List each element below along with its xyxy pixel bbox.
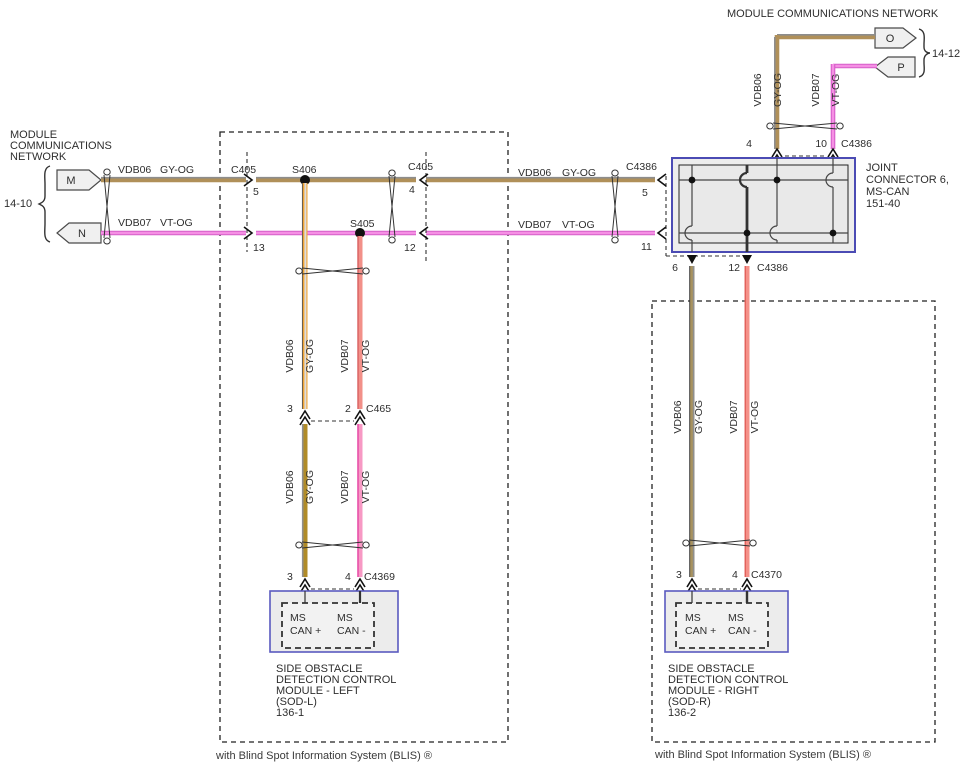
connector-name: C4386 [757,262,788,274]
pin-number: 12 [404,242,416,254]
connector-name: C4386 [626,161,657,173]
wire-id-label: VDB06 [752,73,764,106]
wire-id-label: VDB06 [518,167,551,179]
module-pin-label: MS [337,612,353,624]
module-label-line: 136-2 [668,707,696,719]
wire-can-low-drop-upper [358,236,360,409]
arrow-down-icon [742,255,752,264]
connector-o-label: O [886,33,895,45]
connector-c405-left: C405 5 13 [231,152,265,254]
joint-connector-box [672,158,855,252]
wire-can-high-drop-upper [302,183,305,409]
arrow-up-icon [355,417,365,425]
pin-number: 4 [732,569,738,581]
wire-id-label: VDB07 [339,339,351,372]
pin-number: 3 [676,569,682,581]
wire-color-label: VT-OG [562,219,595,231]
wire-color-label: GY-OG [304,339,316,373]
wire-id-label: VDB07 [118,217,151,229]
connector-name: C405 [408,161,433,173]
pin-number: 12 [728,262,740,274]
footnote-left: with Blind Spot Information System (BLIS… [215,750,432,762]
module-pin-label: CAN - [728,625,757,637]
module-sod-right-label: SIDE OBSTACLE DETECTION CONTROL MODULE -… [668,663,788,719]
wire-id-label: VDB07 [339,470,351,503]
connector-c405-right: C405 4 12 [404,152,433,262]
module-sod-left-label: SIDE OBSTACLE DETECTION CONTROL MODULE -… [276,663,396,719]
wire-color-label: VT-OG [830,74,842,107]
wire-color-label: VT-OG [749,401,761,434]
arrow-left-icon [658,174,666,186]
connector-name: C465 [366,403,391,415]
wire-id-label: VDB06 [284,339,296,372]
arrow-left-icon [658,227,666,239]
network-top-right-ref: 14-12 [932,48,960,60]
joint-connector-label: JOINT CONNECTOR 6, MS-CAN 151-40 [866,162,949,210]
junction-dot [774,177,781,184]
network-top-right-title: MODULE COMMUNICATIONS NETWORK [727,8,939,20]
wire-color-label: VT-OG [360,340,372,373]
joint-connector-label-line: 151-40 [866,198,900,210]
connector-n-label: N [78,228,86,240]
pin-number: 4 [345,571,351,583]
network-left-ref: 14-10 [4,198,32,210]
wire-id-label: VDB07 [810,73,822,106]
arrow-up-icon [300,417,310,425]
network-left-title-line: NETWORK [10,151,67,163]
wire-can-high-top-right [775,35,875,149]
joint-connector-label-line: JOINT [866,162,898,174]
joint-connector-label-line: MS-CAN [866,186,909,198]
wire-color-label: VT-OG [160,217,193,229]
pin-number: 3 [287,571,293,583]
connector-m-label: M [66,175,75,187]
splice-label: S406 [292,164,317,176]
junction-dot [689,177,696,184]
module-pin-label: CAN + [685,625,716,637]
pin-number: 5 [253,186,259,198]
pin-number: 4 [409,184,415,196]
wire-id-label: VDB06 [672,400,684,433]
pin-number: 5 [642,187,648,199]
wire-id-label: VDB06 [284,470,296,503]
pin-number: 2 [345,403,351,415]
footnote-right: with Blind Spot Information System (BLIS… [654,749,871,761]
module-pin-label: CAN + [290,625,321,637]
junction-dot [830,230,837,237]
wire-id-label: VDB07 [728,400,740,433]
wire-id-label: VDB06 [118,164,151,176]
connector-name: C4386 [841,138,872,150]
wire-color-label: GY-OG [693,400,705,434]
wire-color-label: GY-OG [160,164,194,176]
connector-name: C4370 [751,569,782,581]
module-pin-label: MS [685,612,701,624]
pin-number: 13 [253,242,265,254]
splice-label: S405 [350,218,375,230]
connector-name: C405 [231,164,256,176]
pin-number: 11 [641,241,652,253]
module-sod-left-box: MS CAN + MS CAN - [270,591,398,652]
wire-id-label: VDB07 [518,219,551,231]
wire-color-label: GY-OG [772,73,784,107]
module-pin-label: CAN - [337,625,366,637]
offpage-connector-p-icon [875,57,915,77]
wiring-diagram: MODULE COMMUNICATIONS NETWORK 14-10 M N … [0,0,971,771]
module-sod-right-box: MS CAN + MS CAN - [665,591,788,652]
wire-color-label: VT-OG [360,471,372,504]
network-left-header: MODULE COMMUNICATIONS NETWORK 14-10 M N [4,129,112,243]
pin-number: 4 [746,138,752,150]
brace-icon [919,29,930,77]
joint-connector-label-line: CONNECTOR 6, [866,174,949,186]
wiring-diagram-page: MODULE COMMUNICATIONS NETWORK 14-10 M N … [0,0,971,771]
offpage-connector-o-icon [875,28,916,48]
arrow-down-icon [687,255,697,264]
module-pin-label: MS [290,612,306,624]
wire-color-label: GY-OG [562,167,596,179]
connector-name: C4369 [364,571,395,583]
pin-number: 10 [815,138,827,150]
pin-number: 3 [287,403,293,415]
module-label-line: 136-1 [276,707,304,719]
brace-icon [39,166,50,242]
wire-can-low-drop-right [745,266,747,577]
junction-dot [744,230,751,237]
connector-p-label: P [897,62,904,74]
offpage-connector-m-icon [57,170,101,190]
wire-color-label: GY-OG [304,470,316,504]
pin-number: 6 [672,262,678,274]
module-pin-label: MS [728,612,744,624]
